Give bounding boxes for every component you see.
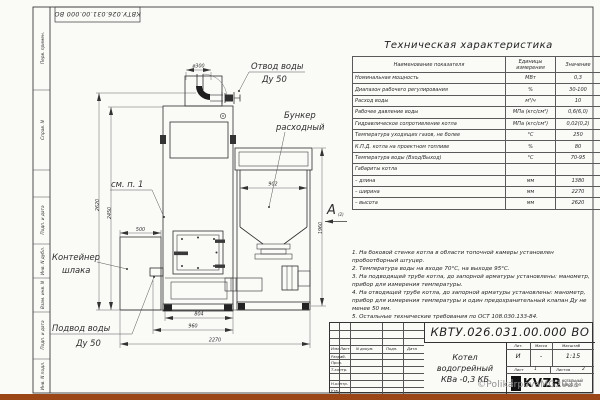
spec-table-title: Техническая характеристика (352, 40, 585, 51)
product-name-line1: Котел водогрейный (424, 353, 506, 375)
tb-grid (506, 349, 594, 350)
tb-lit-label: Лит. (514, 344, 523, 348)
tb-scale-label: Масштаб (562, 344, 580, 348)
tb-sheet-value: 1 (534, 368, 537, 373)
tb-mass-label: Масса (535, 344, 547, 348)
stamp-label-invpodl: Инв. N подл. (40, 362, 46, 390)
spec-row: Диапазон рабочего регулирования%30-100 (353, 84, 600, 95)
dim-902: 902 (268, 182, 277, 188)
label-outlet-1: Отвод воды (251, 61, 304, 71)
dim-960: 960 (188, 324, 197, 330)
spec-row: Гидравлическое сопротивление котлаМПа (к… (353, 118, 600, 129)
dim-2270: 2270 (209, 338, 221, 344)
tb-sheets-value: 2 (582, 368, 585, 373)
stamp-label-podp2: Подп. и дата (40, 320, 46, 350)
note-3: 3. На подводящей трубе котла, до запорно… (352, 274, 592, 290)
spec-row: Температура уходящих газов, не более°С25… (353, 129, 600, 140)
door-latch-bottom (215, 265, 225, 268)
tb-grid (330, 338, 424, 339)
dim-500: 500 (136, 227, 145, 233)
tb-grid (330, 359, 424, 360)
tb-sheets-label: Листов (556, 368, 570, 372)
dim-2450: 2450 (107, 207, 113, 219)
tb-grid (330, 330, 424, 331)
spec-row: Рабочее давление водыМПа (кгс/см²)0,6(6,… (353, 107, 600, 118)
view-a-letter: А (326, 203, 336, 218)
label-see-note: см. п. 1 (111, 179, 143, 189)
dim-804: 804 (194, 312, 203, 318)
tb-row-razrab: Разраб. (331, 355, 346, 359)
dim-dia300: ø300 (191, 64, 204, 70)
tb-col-podp: Подп. (386, 347, 398, 351)
label-outlet-2: Ду 50 (261, 74, 287, 84)
label-inlet-2: Ду 50 (75, 338, 101, 348)
tb-grid (330, 373, 424, 374)
door-hinge (174, 252, 188, 256)
stamp-label-invdubl: Инв. N дубл. (40, 247, 46, 275)
spec-row: – длинамм1380 (353, 175, 600, 186)
stamp-label-sprav: Справ. N (40, 119, 46, 139)
tb-grid (550, 366, 551, 373)
stamp-label-perv: Перв. примен. (40, 32, 46, 64)
view-a-ref: (2) (338, 212, 344, 217)
tb-grid (330, 387, 424, 388)
corner-stamp-text: КВТУ.026.031.00.000 ВО (54, 10, 140, 17)
tb-row-prov: Пров. (331, 361, 342, 365)
tb-scale-value: 1:15 (552, 352, 594, 360)
tb-lit-value: И (506, 352, 530, 360)
tb-sheet-label: Лист (514, 368, 524, 372)
door-latch-top (215, 240, 225, 243)
bottom-strip (0, 394, 600, 400)
note-1: 1. На боковой стенке котла в области топ… (352, 250, 592, 266)
label-bunker-2: расходный (275, 122, 325, 132)
dim-1960: 1960 (318, 222, 324, 234)
spec-header-row: Наименование показателя Единицы измерени… (353, 57, 600, 73)
spec-table: Наименование показателя Единицы измерени… (352, 56, 600, 210)
tb-mass-value: - (530, 352, 552, 360)
tb-grid (506, 373, 594, 374)
technical-notes: 1. На боковой стенке котла в области топ… (352, 250, 592, 321)
spec-row: Расход водым³/ч10 (353, 95, 600, 106)
spec-header-value: Значение (556, 57, 600, 73)
tb-row-nkontr: Н.контр. (331, 382, 348, 386)
tb-col-dokum: N докум. (356, 347, 374, 351)
label-slag-2: шлака (62, 265, 90, 275)
label-bunker-1: Бункер (284, 110, 316, 120)
note-4: 4. На отводящей трубе котла, до запорной… (352, 290, 592, 314)
drawing-sheet: Перв. примен. Справ. N Подп. и дата Инв.… (0, 0, 600, 400)
stamp-label-vzam: Взам. инв. N (40, 280, 46, 309)
spec-row: Температура воды (Вход/Выход)°С70-95 (353, 152, 600, 163)
title-block-doc-number: КВТУ.026.031.00.000 ВО (424, 323, 595, 343)
label-inlet-1: Подвод воды (52, 323, 111, 333)
tb-col-data: Дата (407, 347, 417, 351)
spec-row: Номинальная мощностьМВт0,3 (353, 73, 600, 84)
stamp-label-podp1: Подп. и дата (40, 205, 46, 235)
tb-row-utv: Утв. (331, 389, 339, 393)
tb-row-tkontr: Т.контр. (331, 368, 347, 372)
copyright-watermark: ©PolikarpovaMG2021 (477, 380, 579, 390)
tb-col-list: Лист (340, 347, 350, 351)
tb-col-izm: Изм. (331, 347, 340, 351)
spec-row: – ширинамм2270 (353, 186, 600, 197)
label-slag-1: Контейнер (52, 252, 100, 262)
note-5: 5. Остальные технические требования по О… (352, 314, 592, 322)
dim-2620: 2620 (95, 199, 101, 211)
note-2: 2. Температура воды на входе 70°С, на вы… (352, 266, 592, 274)
spec-row: К.П.Д. котла на проектном топливе%80 (353, 141, 600, 152)
spec-row: – высотамм2620 (353, 198, 600, 209)
spec-header-name: Наименование показателя (353, 57, 506, 73)
spec-row: Габариты котла (353, 164, 600, 175)
spec-header-units: Единицы измерения (506, 57, 556, 73)
